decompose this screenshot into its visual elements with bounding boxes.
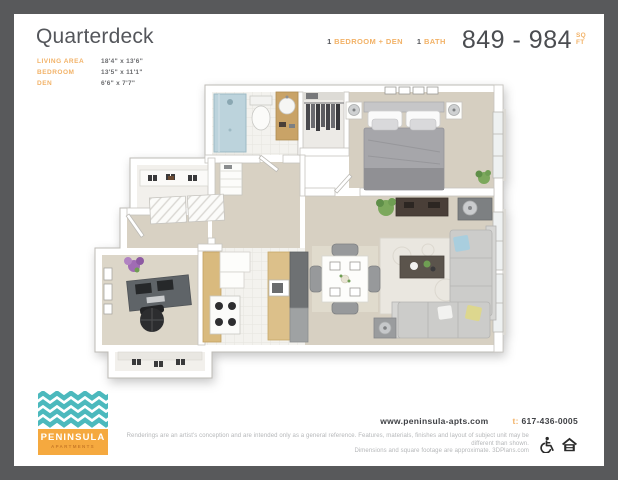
legal-icons — [538, 436, 578, 453]
floorplan-rendering — [85, 80, 525, 395]
upper-cabinet — [220, 252, 250, 272]
coffee-table — [400, 256, 444, 278]
phone: t: 617-436-0005 — [513, 416, 578, 426]
shoe-closet — [140, 170, 208, 186]
logo-brand: PENINSULA — [38, 432, 108, 443]
unit-summary: 1 BEDROOM + DEN 1 BATH 849 - 984 SQ FT — [327, 27, 586, 53]
spec-living-area: LIVING AREA 18'4" x 13'6" — [37, 56, 143, 67]
microwave — [269, 280, 289, 296]
footer-contact: www.peninsula-apts.com t: 617-436-0005 R… — [108, 416, 578, 456]
end-table-lamp — [374, 318, 396, 338]
logo-band: PENINSULA APARTMENTS — [38, 429, 108, 455]
kitchen-counter-back — [290, 308, 308, 342]
toilet-tank — [250, 96, 272, 105]
bedroom-count: 1 BEDROOM + DEN — [327, 37, 403, 46]
dining-chair-bottom — [332, 302, 358, 314]
legal-row: Renderings are an artist's conception an… — [108, 433, 578, 456]
spec-bedroom: BEDROOM 13'5" x 11'1" — [37, 67, 143, 78]
flyer-card: Quarterdeck LIVING AREA 18'4" x 13'6" BE… — [14, 14, 604, 466]
sink — [279, 98, 295, 114]
spec-label: BEDROOM — [37, 67, 101, 78]
refrigerator — [290, 252, 308, 308]
dining-set — [310, 244, 380, 314]
pillow-white — [437, 305, 453, 320]
pillow-blue — [453, 235, 470, 252]
den-wall-frames — [104, 268, 112, 314]
spec-value: 18'4" x 13'6" — [101, 56, 143, 67]
contact-row: www.peninsula-apts.com t: 617-436-0005 — [108, 416, 578, 426]
bath-count: 1 BATH — [417, 37, 446, 46]
headboard — [364, 102, 444, 112]
side-table-lamp — [458, 198, 492, 220]
office-chair — [140, 304, 165, 332]
dining-chair-top — [332, 244, 358, 256]
tv-console — [396, 198, 448, 216]
bedroom-closet — [303, 92, 344, 131]
equal-housing-opportunity-icon — [561, 436, 578, 453]
phone-prefix: t: — [513, 416, 519, 426]
disclaimer: Renderings are an artist's conception an… — [108, 433, 529, 456]
peninsula-logo: PENINSULA APARTMENTS — [38, 391, 108, 455]
dining-chair-right — [368, 266, 380, 292]
stove — [210, 296, 240, 334]
toilet — [252, 106, 270, 130]
cabinet — [220, 272, 244, 288]
website: www.peninsula-apts.com — [380, 416, 488, 426]
square-footage-unit: SQ FT — [576, 32, 586, 46]
square-footage-range: 849 - 984 — [462, 27, 572, 53]
linen-shelf — [220, 163, 242, 195]
logo-brand-sub: APARTMENTS — [38, 444, 108, 449]
dining-chair-left — [310, 266, 322, 292]
logo-waves-icon — [38, 391, 108, 429]
flyer-page: { "header": { "title": "Quarterdeck", "s… — [0, 0, 618, 480]
spec-value: 13'5" x 11'1" — [101, 67, 143, 78]
spec-label: LIVING AREA — [37, 56, 101, 67]
wheelchair-accessible-icon — [538, 436, 555, 453]
page-title: Quarterdeck — [36, 25, 154, 49]
bedroom-window — [493, 112, 503, 178]
